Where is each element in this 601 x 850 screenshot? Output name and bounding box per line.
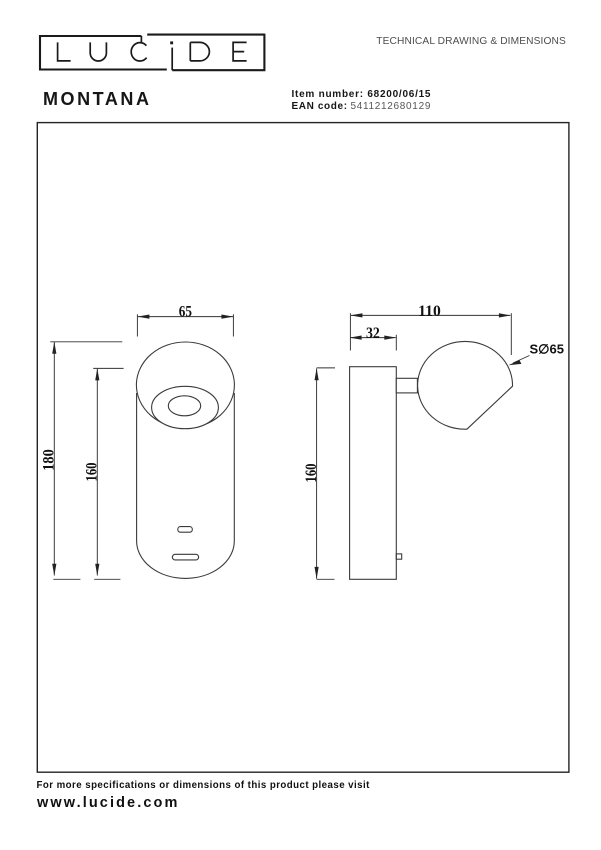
svg-text:160: 160 xyxy=(83,462,100,481)
svg-text:110: 110 xyxy=(418,303,441,320)
svg-text:180: 180 xyxy=(41,449,58,471)
svg-text:32: 32 xyxy=(366,325,380,342)
svg-text:S∅65: S∅65 xyxy=(530,342,564,357)
svg-text:160: 160 xyxy=(303,463,320,482)
svg-text:65: 65 xyxy=(179,303,192,320)
